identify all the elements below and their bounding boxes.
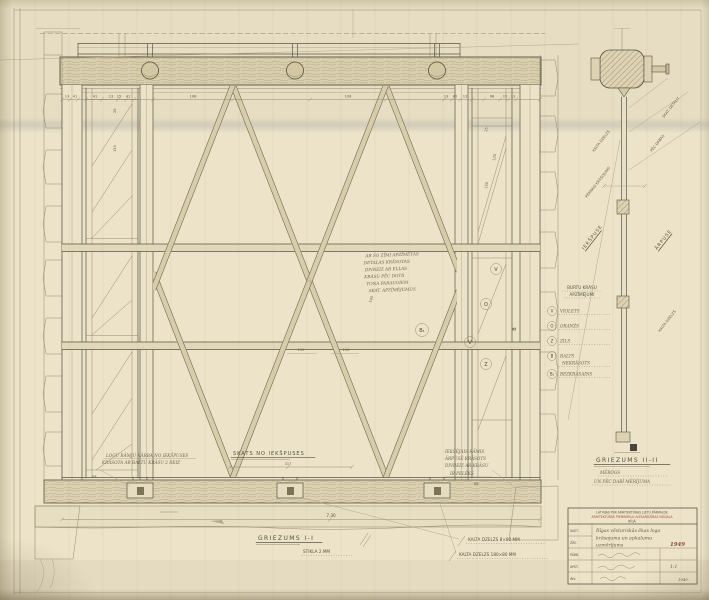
footer-labels: GRIEZUMS I-I STIKLA 2 MM KALTA DZELZS 8×… [256,533,549,561]
title-block: LATVIJAS PSR ARHITEKTŪRAS LIETU PĀRVALDE… [568,508,697,584]
dim: 110 [343,348,351,352]
dim: 13 [444,95,449,99]
titleblock-row-label: PĀRB. [570,552,579,557]
section2-title: GRIEZUMS II-II [596,457,659,464]
dim: 108 [190,95,198,99]
legend-key: B₁ [550,372,555,377]
marker-v: V [468,340,472,346]
note-line: TOŅA PARAUGIEM [366,280,409,286]
titleblock-desc-line: uzmērījums [596,543,624,549]
marker-v: V [494,267,498,273]
lattice-braces [150,85,462,477]
legend-label: VIOLETS [560,309,580,314]
annotation-dim: 88 [92,475,97,479]
label-outside: ĀRPUSE [653,228,673,251]
dim: 13 [463,95,468,99]
legend-item-z: Z ZILS [548,337,611,346]
drawing-canvas: 25 150 25 120 150 [0,0,709,600]
label-inside: IEKŠPUSE [580,223,604,251]
dim-label: 150 [484,181,489,189]
span-dim: 7.30 [326,513,336,518]
dim: 15 [117,95,122,99]
titleblock-desc-line: Rīgas vēsturiskās ēkas loga [595,528,660,534]
section1-title: GRIEZUMS I-I [258,535,314,542]
left-pilaster: 25 150 [86,88,138,478]
horizontal-fold-crease [0,118,709,133]
view-dim: 317 [285,462,292,466]
marker-o: O [484,302,488,308]
dim-label: 25 [484,127,489,132]
titleblock-printed-1: LATVIJAS PSR ARHITEKTŪRAS LIETU PĀRVALDE [596,510,668,515]
legend-item-o: O ORANŽS [548,322,611,331]
dim: 13 [109,95,114,99]
note-line: SKAT. APZĪMĒJUMUS [369,286,416,293]
titleblock-year: 1949 [670,542,685,548]
legend-key: O [550,324,553,329]
legend-item-v: V VIOLETS [548,307,611,316]
note-line: DETAĻAS KRĀSOTAS [363,259,410,266]
legend-label: BEZKRĀSAINS [559,372,593,377]
dim-label: 120 [492,153,497,161]
view-annotation: SKATS NO IEKŠPUSES 317 [228,450,354,469]
titleblock-printed-2-stamp: ARHITEKTŪRAS PIEMINEKĻU AIZSARDZĪBAS NOD… [591,514,673,519]
legend-key: Z [551,339,554,344]
dim: 140 [368,295,374,304]
note-line: DIVREIZ AR EĻĻAS [364,266,407,273]
dim: 108 [345,95,353,99]
titleblock-row-label: ZĪM. [570,540,577,545]
dim: 98 [490,95,495,99]
annotation-line: ĀRPUSĒ KRĀSOTS [444,456,486,461]
drawing-sheet: 25 150 25 120 150 [0,0,709,600]
annotation-line: DIVREIZ AR KRĀSU [444,463,489,468]
iron-note-2: KALTA DZELZS 180×80 MM [459,552,516,557]
titleblock-row-label: APST. [570,565,578,569]
marker-b: B [512,327,518,331]
view-label: SKATS NO IEKŠPUSES [233,450,305,457]
legend-key: V [551,309,554,314]
legend-label: ZILS [559,339,570,344]
dim-label: 150 [113,144,117,152]
titleblock-printed-3: RĪGĀ [628,519,636,524]
legend-label: BALTS [559,354,574,359]
legend-key: B [551,354,554,359]
label-paint: PĒRNAIS KRĀSOJUMS [584,165,612,199]
dim: 41 [93,95,98,99]
dim: 41 [126,95,131,99]
dim: 13 [65,95,70,99]
titleblock-year-2: 1949. [678,577,689,582]
section2-sub2: UN PĒC DABĪ MĒRĪJUMA [594,479,650,484]
annotation-line: IR PELĒKS [449,471,474,476]
section2-sub1: MĒROGS [599,470,620,475]
right-pilaster: 25 120 150 [472,88,512,478]
legend-label-2: NEKRĀSOTS [561,361,590,366]
note-block: AR ŠO ZĪMI APZĪMĒTĀS DETAĻAS KRĀSOTAS DI… [362,251,420,293]
annotation-dim: 88 [474,482,479,486]
dim-label: 25 [113,108,117,113]
legend-title-2: APZĪMĒJUMI [570,292,595,297]
titleblock-desc-line: krāsojuma un apkalumu [596,536,652,542]
legend-label: ORANŽS [560,324,579,329]
annotation-line: IEKŠĒJAIS RĀMIS [444,449,484,454]
label-nature: PĒC DABAS [649,133,666,153]
label-iron-right: KALTA DZELZS [658,309,678,333]
titleblock-row-label: INV. [570,577,576,581]
titleblock-row-label: SAST. [570,529,579,533]
frame-posts [62,85,540,480]
note-line: AR ŠO ZĪMI APZĪMĒTĀS [364,251,419,258]
marker-b1: B₁ [419,328,424,334]
annotation-line: LOGU RĀMJU KĀRBA NO IEKŠPUSES [105,453,188,458]
dim: 41 [73,95,78,99]
note-line: KRĀSU PĒC DOTĀ [363,273,404,279]
titleblock-scale: 1:1 [670,564,677,570]
iron-note-1: KALTA DZELZS 8×80 MM [468,537,520,542]
post-section [568,78,700,453]
section1-subtitle: STIKLA 2 MM [303,549,330,554]
dim: 13 [511,95,516,99]
dim: 119 [298,348,306,352]
dim: 41 [453,95,458,99]
marker-z: Z [484,362,488,368]
dim: 15 [503,95,508,99]
annotation-line: KRĀSOTA AR BALTU KRĀSU 2 REIZ [101,460,180,465]
